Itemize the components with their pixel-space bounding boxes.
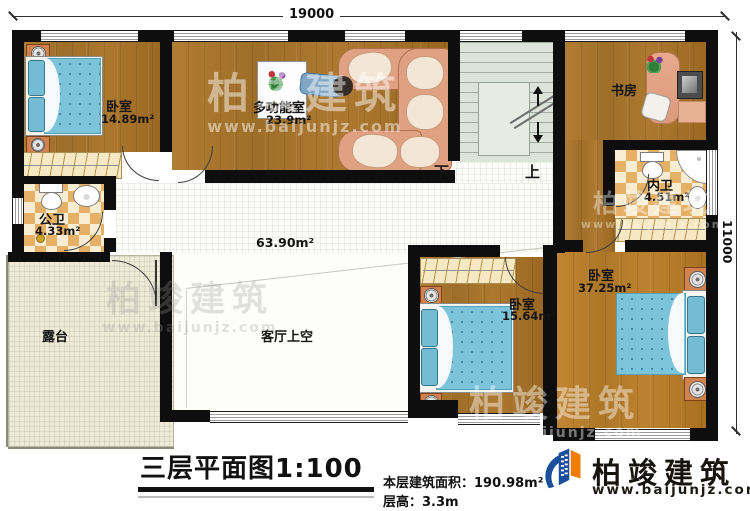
stair-arrow-up <box>533 86 543 94</box>
pillow <box>421 309 438 347</box>
room-area-multifunction: 23.9m² <box>266 113 311 127</box>
sink <box>73 185 100 207</box>
wall <box>8 252 110 262</box>
floor-plan-page: 卧室 14.89m² 多功能室 23.9m² 公卫 4.33m² 书房 内卫 4… <box>0 0 750 511</box>
wall <box>522 30 565 42</box>
corridor-area: 63.90m² <box>256 235 314 250</box>
computer-monitor <box>677 71 703 99</box>
dimension-top-value: 19000 <box>283 7 340 22</box>
wall <box>408 245 500 257</box>
wall <box>553 42 565 253</box>
void-outline-line <box>186 290 187 408</box>
stair-treads <box>460 82 478 155</box>
title-underline-thick <box>138 487 374 492</box>
corridor-floor <box>116 183 565 253</box>
window <box>12 198 24 224</box>
window <box>41 30 138 42</box>
flower-decor <box>264 67 290 91</box>
toilet-bowl <box>41 192 62 210</box>
wall <box>12 30 24 198</box>
pillow <box>687 296 705 334</box>
title-underline-thin <box>138 496 374 498</box>
pillow <box>687 336 705 374</box>
window <box>565 30 685 42</box>
wall <box>543 245 557 435</box>
pillow <box>28 60 45 96</box>
stair-direction-line <box>537 122 539 135</box>
wall <box>603 140 718 150</box>
building-logo-icon <box>540 444 588 498</box>
wardrobe <box>615 218 708 242</box>
wall <box>448 42 460 161</box>
door-arc <box>122 146 159 181</box>
stair-landing-floor <box>456 162 565 183</box>
room-area-bedroom-s: 15.64m² <box>502 309 555 323</box>
room-label-terrace: 露台 <box>42 326 68 345</box>
wall <box>706 30 718 150</box>
room-area-inner-bath: 4.51m² <box>644 190 689 204</box>
wall <box>104 180 116 210</box>
window <box>595 429 690 441</box>
wall <box>12 176 116 184</box>
wardrobe <box>420 258 516 284</box>
brand-url: www.baijunjz.com <box>592 482 750 498</box>
person-head <box>333 76 353 96</box>
dimension-right-value: 11000 <box>720 216 735 268</box>
pillow <box>28 97 45 132</box>
side-table <box>678 101 706 123</box>
door-arc <box>586 220 623 253</box>
wall <box>408 400 458 418</box>
room-area-bedroom-nw: 14.89m² <box>101 112 154 126</box>
wall <box>553 428 595 441</box>
desk-plant <box>644 53 666 73</box>
wall <box>160 252 172 422</box>
window <box>345 30 405 42</box>
dimension-line-top <box>12 16 726 17</box>
floor-height-text: 层高：3.3m <box>383 491 459 510</box>
wall <box>690 428 718 441</box>
wardrobe <box>14 152 122 179</box>
stair-direction-line <box>537 93 539 106</box>
wall <box>408 245 420 400</box>
window <box>458 413 540 425</box>
wall <box>405 30 460 42</box>
building-area-text: 本层建筑面积：190.98m² <box>383 472 543 491</box>
brand-logo-icon <box>540 444 588 498</box>
room-label-study: 书房 <box>611 80 637 99</box>
nightstand <box>420 286 442 304</box>
wall <box>565 240 583 252</box>
plan-title: 三层平面图1:100 <box>140 448 363 485</box>
door-leaf <box>155 260 157 306</box>
wall <box>104 238 116 252</box>
stair-up-label: 上 <box>525 161 540 182</box>
wall <box>706 215 718 430</box>
stair-landing <box>478 82 530 156</box>
stair-arrow-down <box>533 135 543 143</box>
pillow <box>421 348 438 386</box>
dimension-line-right <box>736 32 737 434</box>
stair-down-label: 下 <box>434 161 449 182</box>
wall <box>288 30 345 42</box>
room-area-bedroom-se: 37.25m² <box>578 281 631 295</box>
window <box>174 30 288 42</box>
wall <box>205 170 455 183</box>
sofa-cushion <box>406 56 444 90</box>
window <box>210 411 408 423</box>
sofa-cushion <box>406 94 444 130</box>
wall <box>160 42 172 152</box>
sink <box>688 186 707 209</box>
room-area-public-bath: 4.33m² <box>35 224 80 238</box>
wall <box>625 240 706 252</box>
window <box>706 150 718 215</box>
nightstand <box>26 136 50 153</box>
room-label-living-void: 客厅上空 <box>261 326 313 345</box>
stair-treads <box>460 42 553 82</box>
window <box>460 30 522 42</box>
wall <box>603 150 615 206</box>
wall <box>138 30 174 42</box>
